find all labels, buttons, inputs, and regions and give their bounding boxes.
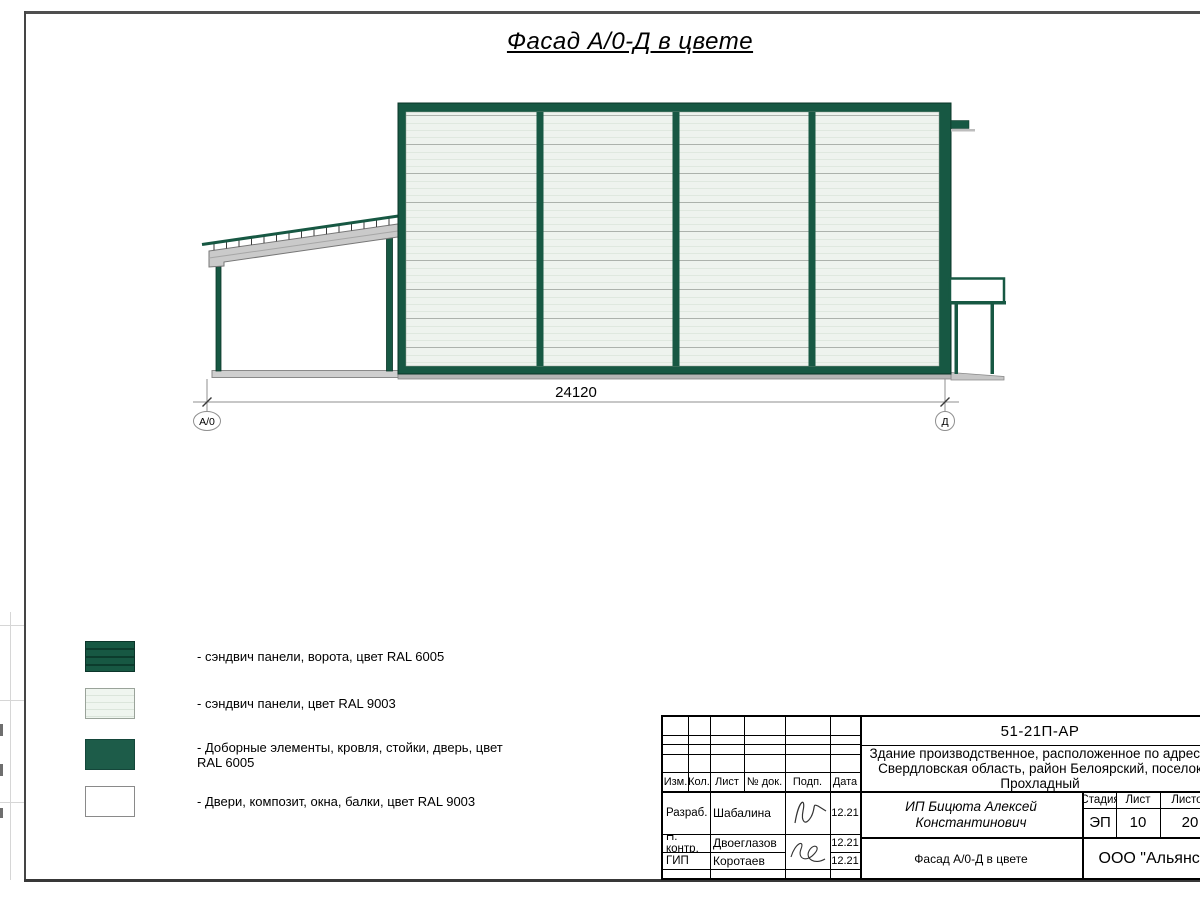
margin-divider — [0, 802, 24, 803]
legend-swatch-gates — [85, 641, 135, 672]
tb-role: ГИП — [663, 852, 710, 869]
margin-text-fragment — [0, 724, 3, 736]
tb-col-kol: Кол. — [688, 772, 710, 791]
signature — [785, 835, 830, 868]
tb-date: 12.21 — [830, 834, 860, 852]
stage-label: Стадия — [1084, 791, 1116, 808]
legend-label: - сэндвич панели, цвет RAL 9003 — [197, 696, 527, 711]
sheets-value: 20 — [1160, 808, 1200, 837]
axis-label-left: А/0 — [199, 416, 215, 428]
axis-bubble-right: Д — [936, 412, 955, 431]
margin-text-fragment — [0, 808, 3, 818]
roof-outlet — [951, 121, 969, 129]
axis-label-right: Д — [941, 416, 948, 428]
customer: ИП Бицюта Алексей Константинович — [860, 793, 1082, 837]
building — [398, 103, 975, 374]
tb-col-data: Дата — [830, 772, 860, 791]
tb-name: Двоеглазов — [710, 834, 785, 852]
tb-name: Шабалина — [710, 791, 785, 834]
title-block: Изм. Кол. Лист № док. Подп. Дата Разраб.… — [661, 715, 1200, 880]
tb-col-podp: Подп. — [785, 772, 830, 791]
axis-bubble-left: А/0 — [194, 412, 221, 431]
sheet-label: Лист — [1116, 791, 1160, 808]
tb-col-list: Лист — [710, 772, 744, 791]
project-address: Здание производственное, расположенное п… — [860, 745, 1200, 791]
tb-role: Н. контр. — [663, 834, 710, 852]
tb-name: Коротаев — [710, 852, 785, 869]
signature — [785, 791, 830, 834]
canopy — [202, 216, 402, 372]
legend-swatch-doors — [85, 786, 135, 817]
legend-item-trim: - Доборные элементы, кровля, стойки, две… — [85, 739, 507, 770]
sheet-title: Фасад А/0-Д в цвете — [860, 839, 1082, 878]
legend-item-doors: - Двери, композит, окна, балки, цвет RAL… — [85, 786, 527, 817]
legend-label: - сэндвич панели, ворота, цвет RAL 6005 — [197, 649, 527, 664]
drawing-sheet: Фасад А/0-Д в цвете — [0, 0, 1200, 900]
margin-divider — [0, 625, 24, 626]
legend-item-gates: - сэндвич панели, ворота, цвет RAL 6005 — [85, 641, 527, 672]
tb-col-izm: Изм. — [663, 772, 688, 791]
margin-column-line — [10, 612, 11, 880]
tb-role: Разраб. — [663, 791, 710, 834]
organization: ООО "Альянс" — [1084, 839, 1200, 878]
sheets-label: Листов — [1160, 791, 1200, 808]
margin-text-fragment — [0, 764, 3, 776]
door-post — [991, 302, 995, 374]
mullion — [809, 112, 816, 366]
stage-value: ЭП — [1084, 808, 1116, 837]
doc-code: 51-21П-АР — [860, 717, 1200, 745]
tb-date: 12.21 — [830, 852, 860, 869]
facade-elevation: 24120 А/0 Д — [0, 0, 1200, 470]
legend-item-panels: - сэндвич панели, цвет RAL 9003 — [85, 688, 527, 719]
legend-label: - Доборные элементы, кровля, стойки, две… — [197, 740, 507, 770]
canopy-post-left — [216, 263, 221, 371]
tb-col-doc: № док. — [744, 772, 785, 791]
mullion — [673, 112, 680, 366]
mullion — [537, 112, 544, 366]
dimension-value: 24120 — [555, 384, 597, 401]
door-canopy — [948, 279, 1006, 375]
legend-swatch-trim — [85, 739, 135, 770]
door-canopy-board — [950, 279, 1004, 303]
legend-label: - Двери, композит, окна, балки, цвет RAL… — [197, 794, 527, 809]
tb-date: 12.21 — [830, 791, 860, 834]
door-post — [955, 302, 959, 374]
margin-divider — [0, 700, 24, 701]
legend-swatch-panels — [85, 688, 135, 719]
sheet-value: 10 — [1116, 808, 1160, 837]
canopy-post-right — [387, 237, 393, 371]
